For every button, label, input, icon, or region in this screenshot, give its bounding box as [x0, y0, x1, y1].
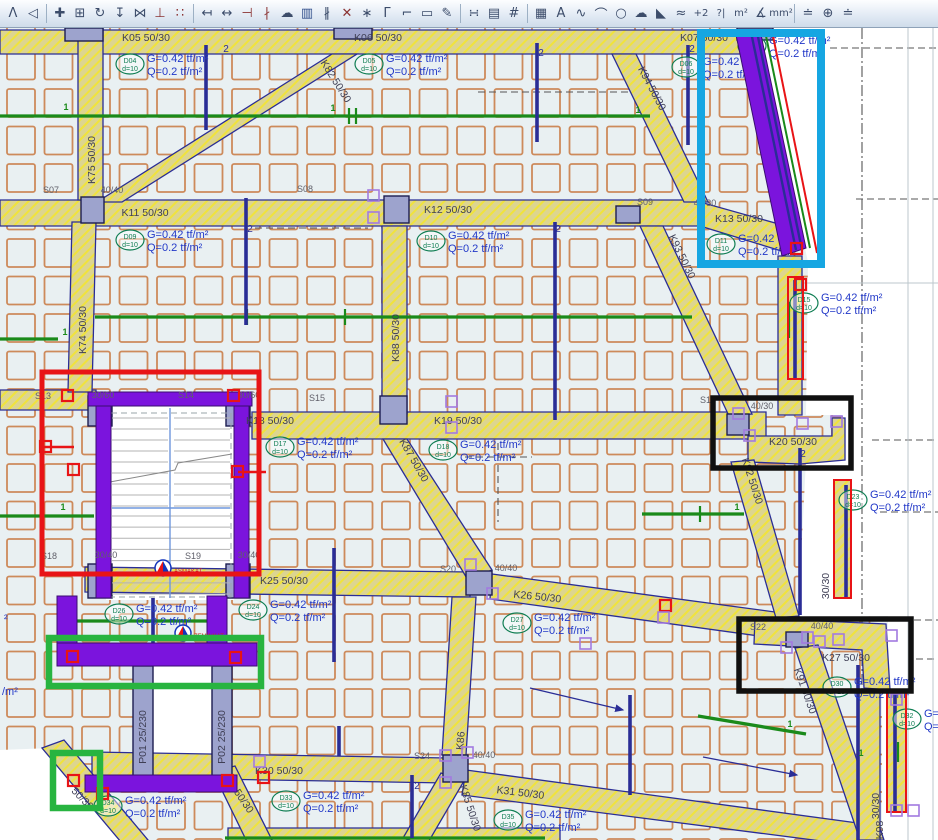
beam-label[interactable]: K25 50/30 — [260, 575, 308, 587]
section-label: S24 — [414, 751, 430, 761]
coordinate-dim-icon[interactable]: ⊕ — [818, 3, 838, 25]
polyline-icon[interactable]: ∿ — [571, 3, 591, 25]
svg-text:Q=0.2 tf/m²: Q=0.2 tf/m² — [147, 242, 203, 254]
beam-label[interactable]: K74 50/30 — [77, 306, 89, 354]
beam-label[interactable]: K27 50/30 — [822, 652, 870, 664]
section-label: 40/40 — [101, 185, 124, 195]
svg-text:G=0.42 tf/m²: G=0.42 tf/m² — [525, 809, 587, 821]
svg-text:D05: D05 — [363, 58, 376, 65]
extend-icon[interactable]: ↤ — [197, 3, 217, 25]
svg-text:Q=0.2 tf/m²: Q=0.2 tf/m² — [460, 452, 516, 464]
slab-label[interactable]: D04d=10G=0.42 tf/m²Q=0.2 tf/m² — [116, 53, 209, 78]
spline-icon[interactable]: ≈ — [671, 3, 691, 25]
column[interactable] — [380, 396, 407, 424]
svg-text:Q=0.2 tf/m²: Q=0.2 tf/m² — [147, 66, 203, 78]
statistics-icon[interactable]: ▥ — [297, 3, 317, 25]
section-label: 40/40 — [473, 750, 496, 760]
section-label: 40/40 — [495, 563, 518, 573]
svg-text:D10: D10 — [425, 235, 438, 242]
svg-text:G=0.42 tf/m²: G=0.42 tf/m² — [460, 439, 522, 451]
beam-label[interactable]: K98 — [874, 821, 886, 840]
slab-label[interactable]: D23d=10G=0.42 tf/m²Q=0.2 tf/m² — [839, 489, 932, 514]
svg-text:G=0.42 tf/m²: G=0.42 tf/m² — [448, 230, 510, 242]
rebar-count-label: 1 — [60, 502, 65, 512]
rebar-count-label: 1 — [635, 105, 640, 115]
chamfer-icon[interactable]: ⌐ — [397, 3, 417, 25]
shear-wall[interactable] — [234, 406, 249, 598]
fence-icon[interactable]: ∺ — [464, 3, 484, 25]
beam-label[interactable]: K06 50/30 — [354, 32, 402, 44]
beam-label[interactable]: K05 50/30 — [122, 32, 170, 44]
svg-text:d=10: d=10 — [678, 69, 694, 76]
section-label: S07 — [43, 185, 59, 195]
svg-text:D32: D32 — [901, 713, 914, 720]
query-length-icon[interactable]: ?| — [711, 3, 731, 25]
both-extend-icon[interactable]: ↔ — [217, 3, 237, 25]
svg-text:d=10: d=10 — [111, 616, 127, 623]
slab-label[interactable]: D10d=10G=0.42 tf/m²Q=0.2 tf/m² — [417, 230, 510, 255]
divide-icon[interactable]: ∦ — [317, 3, 337, 25]
strip-count-label: 2 — [689, 44, 695, 55]
beam-label[interactable]: K11 50/30 — [121, 207, 168, 219]
elevation-mark-icon[interactable]: ≐ — [838, 3, 858, 25]
svg-text:d=10: d=10 — [245, 612, 261, 619]
svg-text:Q=0.2 tf/m²: Q=0.2 tf/m² — [125, 808, 181, 820]
svg-text:G=0.42 tf/m²: G=0.42 tf/m² — [870, 489, 932, 501]
svg-text:d=10: d=10 — [500, 822, 516, 829]
rebar-count-label: 1 — [787, 719, 792, 729]
grid-icon[interactable]: # — [504, 3, 524, 25]
svg-text:D09: D09 — [124, 234, 137, 241]
beam-label[interactable]: K18 50/30 — [246, 415, 294, 427]
beam-label[interactable]: K88 50/30 — [390, 314, 402, 362]
svg-text:D15: D15 — [798, 297, 811, 304]
beam-label[interactable]: 30/30 — [870, 793, 882, 819]
rebar-count-label: 1 — [734, 502, 739, 512]
array-icon[interactable]: ∷ — [170, 3, 190, 25]
section-label: 40/30 — [751, 401, 774, 411]
rebar-count-label: 1 — [63, 102, 68, 112]
column[interactable] — [65, 28, 103, 41]
clipped-label-fragment: ² — [4, 613, 8, 625]
section-label: 40/40 — [811, 621, 834, 631]
slab-label[interactable]: D17d=10G=0.42 tf/m²Q=0.2 tf/m² — [266, 436, 359, 461]
svg-text:G=0.42 tf/m²: G=0.42 tf/m² — [136, 603, 198, 615]
beam[interactable] — [252, 412, 766, 439]
svg-text:d=10: d=10 — [899, 721, 915, 728]
svg-text:D17: D17 — [274, 441, 287, 448]
wand-icon[interactable]: ✎ — [437, 3, 457, 25]
svg-text:D30: D30 — [831, 681, 844, 688]
cad-application-window: Λ◁✚⊞↻↧⋈⊥∷↤↔⊣∤☁▥∦✕∗Γ⌐▭✎∺▤#▦A∿⌒○☁◣≈+2?|m²∡… — [0, 0, 938, 840]
trim-icon[interactable]: ⊣ — [237, 3, 257, 25]
svg-text:d=10: d=10 — [122, 66, 138, 73]
column[interactable] — [727, 414, 749, 435]
toolbar-separator — [46, 4, 47, 23]
arc-icon[interactable]: ⌒ — [591, 3, 611, 25]
svg-text:d=10: d=10 — [796, 305, 812, 312]
svg-text:D35: D35 — [502, 814, 515, 821]
svg-text:D04: D04 — [124, 58, 137, 65]
column[interactable] — [786, 632, 808, 647]
svg-text:d=10: d=10 — [509, 625, 525, 632]
section-label: S09 — [637, 197, 653, 207]
section-label: 30/40 — [95, 550, 118, 560]
drafting-compass-icon[interactable]: Λ — [3, 3, 23, 25]
cloud-icon[interactable]: ☁ — [631, 3, 651, 25]
beam-label[interactable]: K13 50/30 — [715, 213, 763, 225]
drawing-toolbar: Λ◁✚⊞↻↧⋈⊥∷↤↔⊣∤☁▥∦✕∗Γ⌐▭✎∺▤#▦A∿⌒○☁◣≈+2?|m²∡… — [0, 0, 938, 28]
svg-text:Q=0.2 tf/m²: Q=0.2 tf/m² — [297, 449, 353, 461]
svg-text:D06: D06 — [680, 61, 693, 68]
delete-icon[interactable]: ✕ — [337, 3, 357, 25]
shear-wall[interactable] — [96, 406, 111, 598]
svg-text:d=10: d=10 — [713, 246, 729, 253]
section-label: 30/60 — [92, 390, 115, 400]
slab-label[interactable]: D24d=10G=0.42 tf/m²Q=0.2 tf/m² — [239, 599, 332, 624]
svg-text:Q=0.2 tf/m²: Q=0.2 tf/m² — [534, 625, 590, 637]
mirror-icon[interactable]: ⋈ — [130, 3, 150, 25]
insert-base-icon[interactable]: ↧ — [110, 3, 130, 25]
slab-label[interactable]: D33d=10G=0.42 tf/m²Q=0.2 tf/m² — [272, 790, 365, 815]
beam-label[interactable]: K19 50/30 — [434, 415, 482, 427]
rebar-count-label: 1 — [858, 748, 863, 758]
drawing-canvas[interactable]: D04d=10G=0.42 tf/m²Q=0.2 tf/m²D05d=10G=0… — [0, 28, 938, 840]
svg-text:G=0.42 tf/m²: G=0.42 tf/m² — [534, 612, 596, 624]
level-mark-icon[interactable]: ≐ — [798, 3, 818, 25]
column[interactable] — [81, 197, 104, 223]
svg-text:Q=0.2 tf/m²: Q=0.2 tf/m² — [270, 612, 326, 624]
section-label: S15 — [309, 393, 325, 403]
svg-text:G=0.42 tf/m²: G=0.42 tf/m² — [125, 795, 187, 807]
move-icon[interactable]: ✚ — [50, 3, 70, 25]
layers-book-icon[interactable]: ▤ — [484, 3, 504, 25]
strip-count-label: 2 — [223, 44, 229, 55]
angle-query-icon[interactable]: ∡ — [751, 3, 771, 25]
stretch-icon[interactable]: ⊥ — [150, 3, 170, 25]
svg-text:D26: D26 — [113, 608, 126, 615]
revision-stamp-icon[interactable]: ☁ — [277, 3, 297, 25]
rotate-icon[interactable]: ↻ — [90, 3, 110, 25]
svg-text:G=0.42 tf/m²: G=0.42 tf/m² — [147, 53, 209, 65]
toolbar-separator — [794, 4, 795, 23]
svg-text:D11: D11 — [715, 238, 727, 245]
intersection-icon[interactable]: ∗ — [357, 3, 377, 25]
slab-label[interactable]: D35d=10G=0.42 tf/m²Q=0.2 tf/m² — [494, 809, 587, 834]
svg-text:d=10: d=10 — [423, 243, 439, 250]
beam-label[interactable]: 30/30 — [820, 573, 832, 599]
svg-text:D34: D34 — [102, 800, 115, 807]
svg-text:d=10: d=10 — [272, 449, 288, 456]
shear-wall[interactable] — [57, 643, 257, 666]
toolbar-separator — [460, 4, 461, 23]
svg-text:G=0.42 tf/m²: G=0.42 tf/m² — [854, 676, 916, 688]
svg-text:Q=0.2 tf/m²: Q=0.2 tf/m² — [870, 502, 926, 514]
svg-text:Q=0.2 tf/m²: Q=0.2 tf/m² — [525, 822, 581, 834]
strip-count-label: 2 — [414, 781, 420, 792]
svg-text:d=10: d=10 — [278, 803, 294, 810]
slab-label[interactable]: D05d=10G=0.42 tf/m²Q=0.2 tf/m² — [355, 53, 448, 78]
slab-label[interactable]: D27d=10G=0.42 tf/m²Q=0.2 tf/m² — [503, 612, 596, 637]
beam-label[interactable]: P01 25/230 — [137, 710, 149, 764]
offset-2-icon[interactable]: +2 — [691, 3, 711, 25]
strip-count-label: 2 — [538, 48, 544, 59]
slope-icon[interactable]: ◣ — [651, 3, 671, 25]
beam-label[interactable]: K12 50/30 — [424, 204, 472, 216]
section-label: S08 — [297, 184, 313, 194]
svg-text:Q=0.2 tf/m²: Q=0.2 tf/m² — [303, 803, 359, 815]
beam[interactable] — [0, 200, 702, 226]
area-mm2-icon[interactable]: mm² — [771, 3, 791, 25]
toolbar-separator — [193, 4, 194, 23]
svg-text:G=0.42 tf/m²: G=0.42 tf/m² — [297, 436, 359, 448]
svg-text:Q=0.2 tf/m²: Q=0.2 tf/m² — [448, 243, 504, 255]
svg-text:Q=0.2 tf/m²: Q=0.2 tf/m² — [924, 721, 938, 733]
clipped-label-fragment: /m² — [2, 686, 18, 698]
column[interactable] — [443, 755, 468, 782]
slab-label[interactable]: D18d=10G=0.42 tf/m²Q=0.2 tf/m² — [429, 439, 522, 464]
orbit-view-icon[interactable]: ◁ — [23, 3, 43, 25]
svg-text:D24: D24 — [247, 604, 260, 611]
area-m2-icon[interactable]: m² — [731, 3, 751, 25]
svg-text:D23: D23 — [847, 494, 860, 501]
svg-text:D18: D18 — [437, 444, 450, 451]
fillet-icon[interactable]: Γ — [377, 3, 397, 25]
circle-icon[interactable]: ○ — [611, 3, 631, 25]
image-icon[interactable]: ▦ — [531, 3, 551, 25]
rebar-count-label: 1 — [330, 103, 335, 113]
svg-text:G=0.42 tf/m²: G=0.42 tf/m² — [924, 708, 938, 720]
section-label: S14 — [178, 390, 194, 400]
window-select-icon[interactable]: ▭ — [417, 3, 437, 25]
slab-label[interactable]: D09d=10G=0.42 tf/m²Q=0.2 tf/m² — [116, 229, 209, 254]
section-label: S19 — [185, 551, 201, 561]
column[interactable] — [466, 571, 492, 595]
svg-text:d=10: d=10 — [122, 242, 138, 249]
svg-text:d=10: d=10 — [435, 452, 451, 459]
rebar-count-label: 1 — [62, 327, 67, 337]
svg-text:D33: D33 — [280, 795, 293, 802]
beam-label[interactable]: K75 50/30 — [86, 136, 98, 184]
slab-label[interactable]: D26d=10G=0.42 tf/m²Q=0.2 tf/m² — [105, 603, 198, 628]
beam-label[interactable]: K20 50/30 — [769, 436, 817, 448]
svg-text:d=10: d=10 — [845, 502, 861, 509]
beam-label[interactable]: P02 25/230 — [216, 710, 228, 764]
svg-text:G=0.42 tf/m²: G=0.42 tf/m² — [386, 53, 448, 65]
svg-text:d=10: d=10 — [361, 66, 377, 73]
svg-text:G=0.42 tf/m²: G=0.42 tf/m² — [303, 790, 365, 802]
section-label: S22 — [750, 622, 766, 632]
strip-count-label: 2 — [800, 449, 806, 460]
section-label: S20 — [440, 564, 456, 574]
svg-text:G=0.42 tf/m²: G=0.42 tf/m² — [821, 292, 883, 304]
copy-move-icon[interactable]: ⊞ — [70, 3, 90, 25]
toolbar-separator — [527, 4, 528, 23]
floor-plan[interactable]: D04d=10G=0.42 tf/m²Q=0.2 tf/m²D05d=10G=0… — [0, 28, 938, 840]
text-icon[interactable]: A — [551, 3, 571, 25]
svg-text:Q=0.2 tf/m²: Q=0.2 tf/m² — [386, 66, 442, 78]
svg-text:G=0.42 tf/m²: G=0.42 tf/m² — [147, 229, 209, 241]
svg-text:G=0.42 tf/m²: G=0.42 tf/m² — [270, 599, 332, 611]
column[interactable] — [384, 196, 409, 223]
svg-text:D27: D27 — [511, 617, 524, 624]
strip-count-label: 2 — [555, 224, 561, 235]
strip-count-label: 2 — [247, 224, 253, 235]
column[interactable] — [616, 206, 640, 223]
svg-text:Q=0.2 tf/m²: Q=0.2 tf/m² — [821, 305, 877, 317]
break-icon[interactable]: ∤ — [257, 3, 277, 25]
